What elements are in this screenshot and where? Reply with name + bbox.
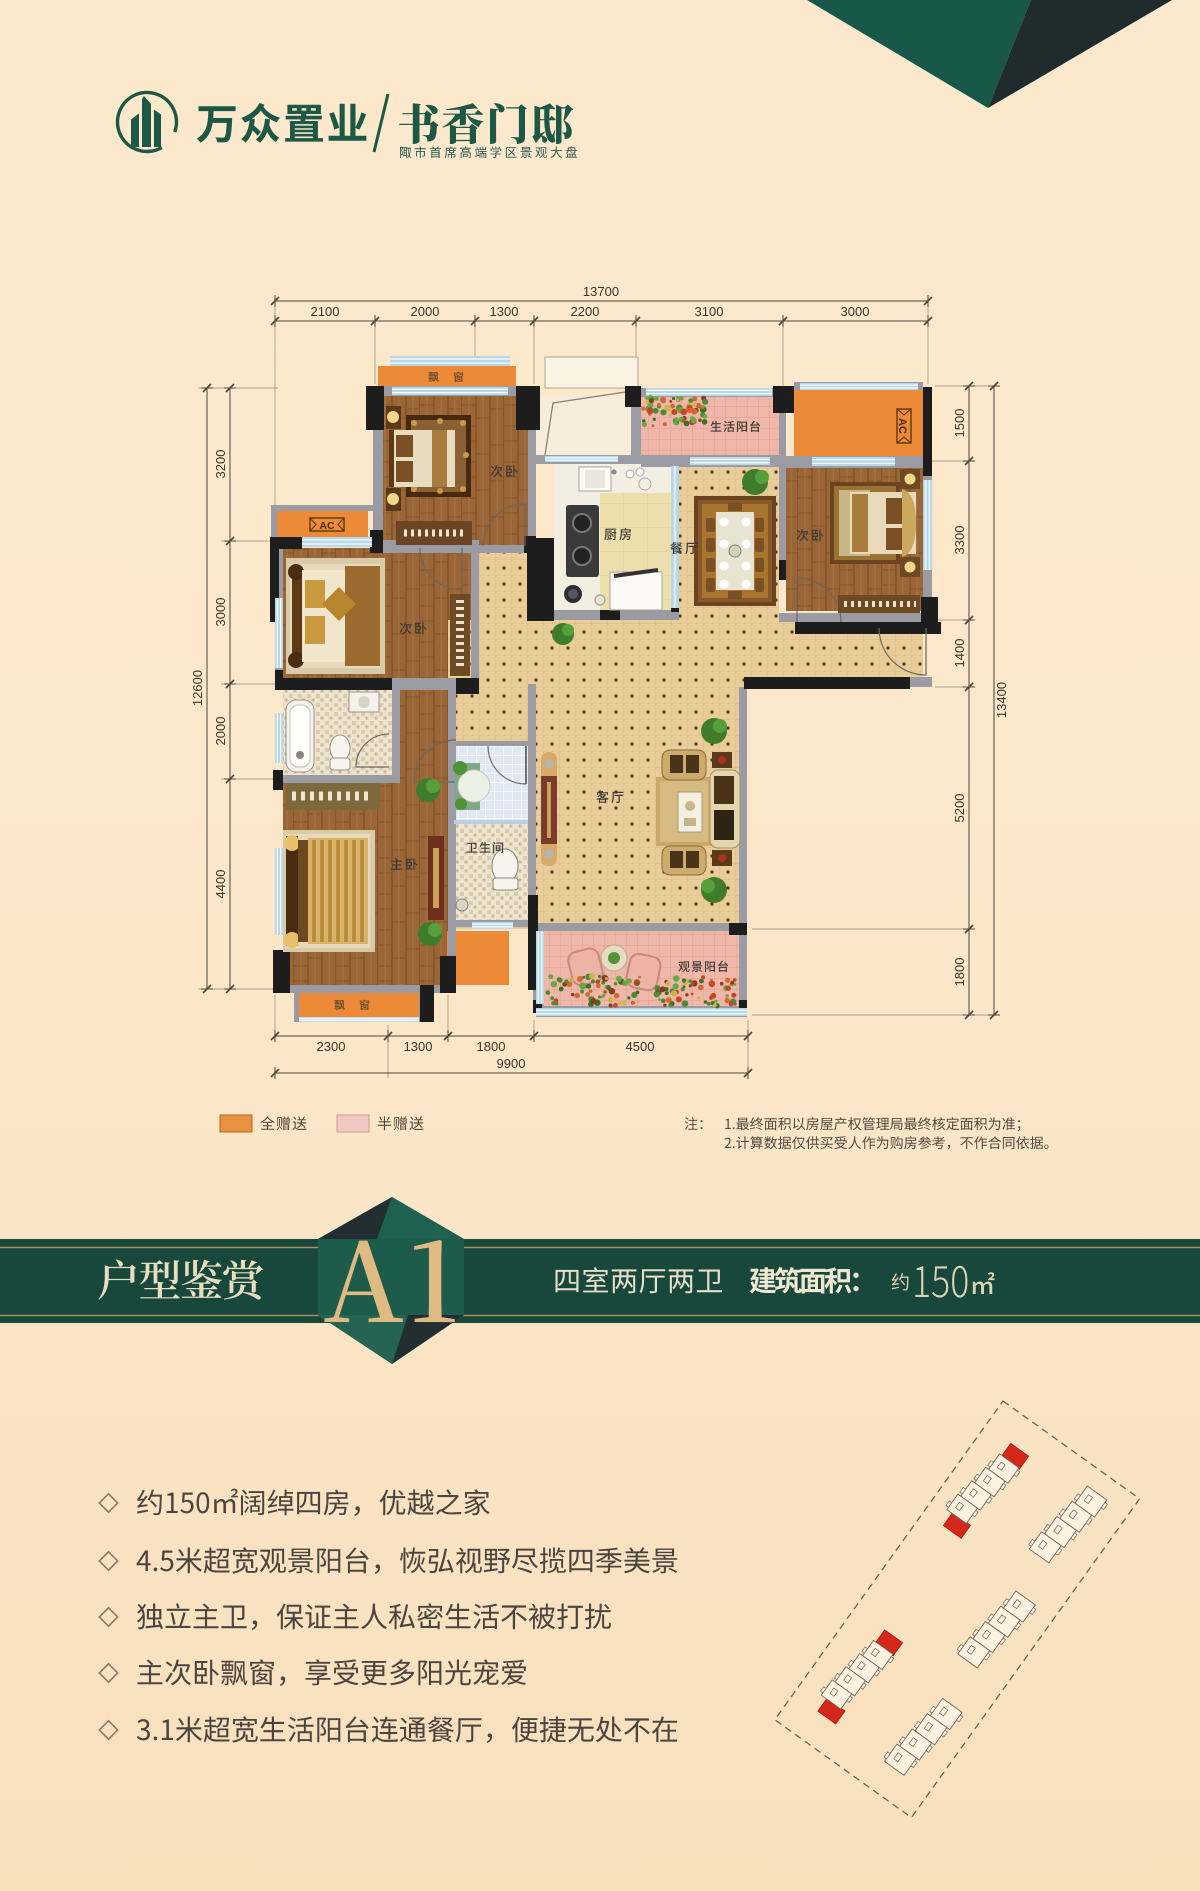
svg-text:9900: 9900 xyxy=(497,1056,526,1071)
svg-text:2000: 2000 xyxy=(213,717,228,746)
svg-text:1300: 1300 xyxy=(404,1039,433,1054)
svg-text:4500: 4500 xyxy=(626,1039,655,1054)
svg-text:1800: 1800 xyxy=(477,1039,506,1054)
svg-text:1400: 1400 xyxy=(952,639,967,668)
svg-text:3000: 3000 xyxy=(213,598,228,627)
svg-text:1500: 1500 xyxy=(952,409,967,438)
svg-text:2300: 2300 xyxy=(317,1039,346,1054)
svg-text:2200: 2200 xyxy=(571,304,600,319)
svg-text:3000: 3000 xyxy=(841,304,870,319)
svg-text:13700: 13700 xyxy=(583,284,619,299)
svg-text:2000: 2000 xyxy=(411,304,440,319)
svg-text:2100: 2100 xyxy=(311,304,340,319)
svg-text:1800: 1800 xyxy=(952,958,967,987)
svg-text:AC: AC xyxy=(319,520,335,532)
svg-text:3300: 3300 xyxy=(952,526,967,555)
svg-text:13400: 13400 xyxy=(994,682,1009,718)
svg-text:3200: 3200 xyxy=(213,450,228,479)
svg-text:AC: AC xyxy=(896,418,908,434)
svg-text:1300: 1300 xyxy=(490,304,519,319)
svg-text:12600: 12600 xyxy=(190,670,205,706)
svg-text:5200: 5200 xyxy=(952,794,967,823)
svg-text:3100: 3100 xyxy=(695,304,724,319)
svg-text:4400: 4400 xyxy=(213,870,228,899)
